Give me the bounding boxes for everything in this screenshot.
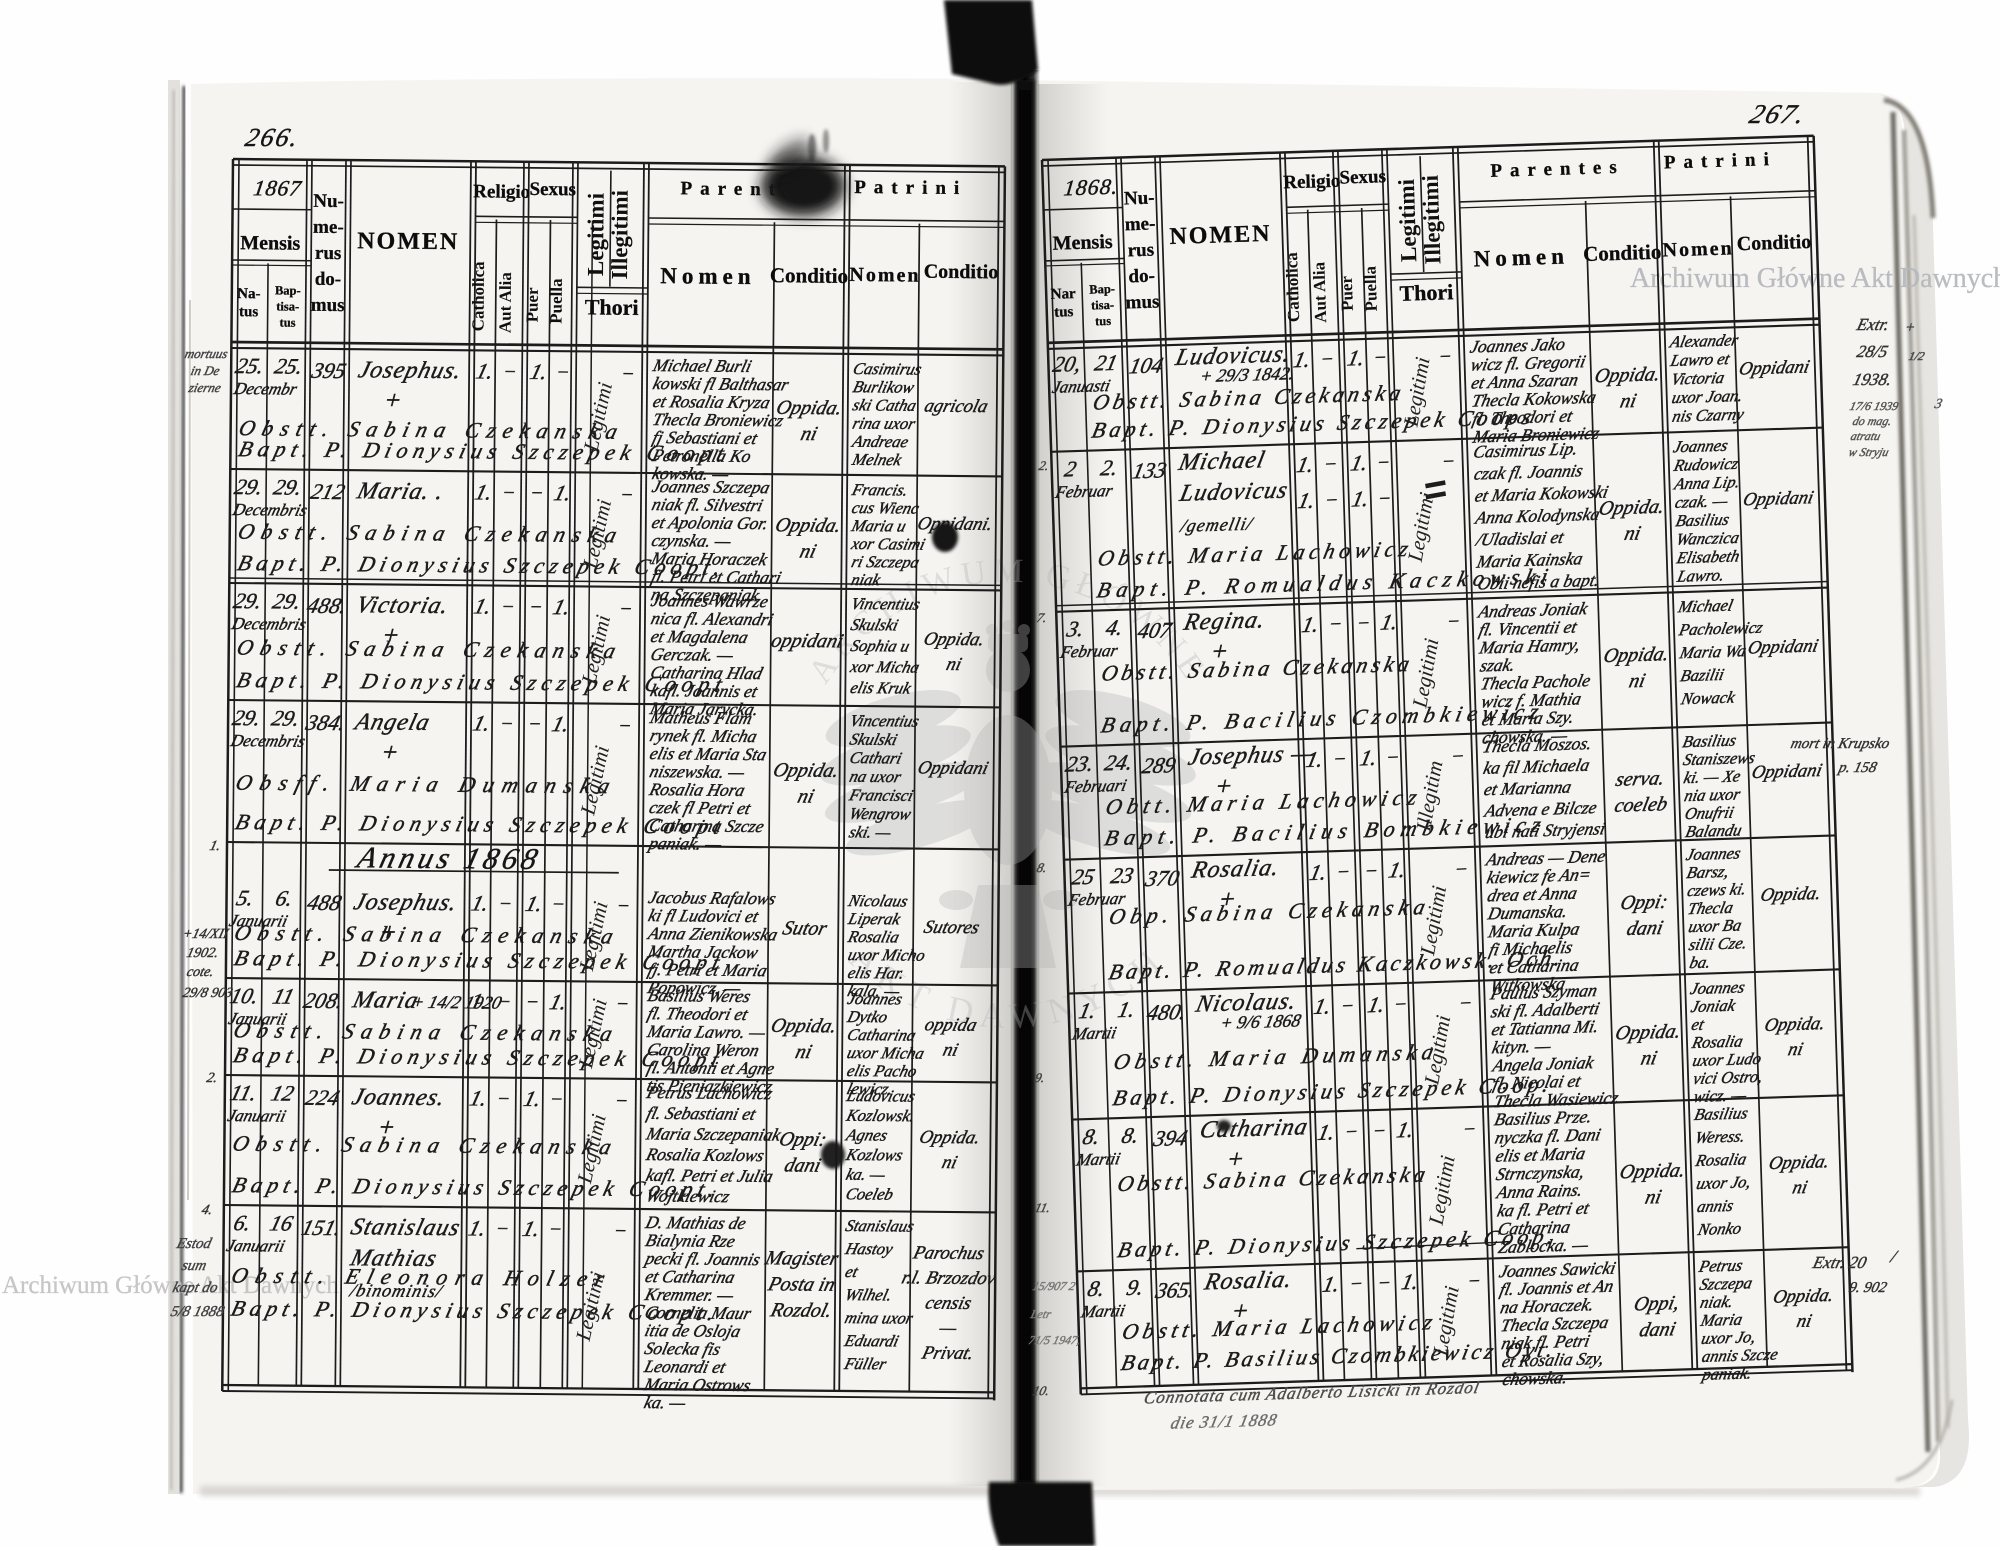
- svg-text:do-: do-: [1128, 266, 1155, 288]
- svg-text:elis Pacho: elis Pacho: [845, 1061, 919, 1080]
- svg-text:Oppi:: Oppi:: [1618, 891, 1669, 914]
- svg-text:Decembris: Decembris: [229, 614, 309, 633]
- svg-text:Andreae: Andreae: [849, 432, 911, 451]
- svg-text:cus Wienc: cus Wienc: [850, 498, 922, 517]
- svg-text:Februar: Februar: [1053, 481, 1115, 502]
- svg-text:Conditio: Conditio: [1736, 231, 1811, 255]
- svg-text:Maria u: Maria u: [849, 516, 908, 535]
- svg-text:dani: dani: [1625, 917, 1666, 940]
- svg-text:Barsz,: Barsz,: [1685, 862, 1731, 882]
- svg-text:Oppida.: Oppida.: [921, 629, 986, 650]
- svg-text:Conditio: Conditio: [1583, 240, 1662, 266]
- svg-text:Nicolaus: Nicolaus: [845, 891, 910, 910]
- svg-text:Regina.: Regina.: [1181, 606, 1269, 635]
- svg-text:15/907 2: 15/907 2: [1031, 1279, 1077, 1293]
- svg-text:ka. —: ka. —: [844, 1165, 887, 1184]
- svg-text:Februar: Februar: [1058, 641, 1120, 662]
- svg-text:384.: 384.: [303, 710, 349, 735]
- svg-text:Eduardi: Eduardi: [842, 1331, 902, 1350]
- svg-text:zierne: zierne: [186, 380, 223, 395]
- svg-text:Wilhel.: Wilhel.: [843, 1285, 894, 1304]
- svg-text:elis Kruk: elis Kruk: [848, 678, 913, 697]
- svg-text:rus: rus: [1127, 240, 1154, 262]
- svg-text:17/6 1939: 17/6 1939: [1848, 399, 1900, 413]
- svg-text:censis: censis: [923, 1293, 974, 1314]
- svg-text:Thecla: Thecla: [1686, 898, 1735, 918]
- svg-text:Parentes: Parentes: [1490, 157, 1625, 182]
- svg-text:Michael: Michael: [1176, 446, 1268, 476]
- svg-text:Cathari: Cathari: [848, 748, 905, 767]
- svg-text:Casimirus Lip.: Casimirus Lip.: [1472, 438, 1580, 461]
- svg-text:1938.: 1938.: [1851, 370, 1894, 389]
- svg-text:r.l. Brzozdov: r.l. Brzozdov: [899, 1268, 998, 1290]
- svg-text:Annus 1868: Annus 1868: [352, 841, 545, 876]
- svg-text:ka fil Michaela: ka fil Michaela: [1482, 755, 1592, 778]
- svg-text:Josephus —: Josephus —: [1186, 740, 1317, 771]
- svg-text:xor Micha: xor Micha: [848, 657, 922, 676]
- svg-text:Liperak: Liperak: [845, 909, 903, 928]
- svg-text:tus: tus: [239, 304, 258, 320]
- svg-text:Rosalia.: Rosalia.: [1188, 854, 1282, 884]
- svg-text:Nu-: Nu-: [313, 191, 344, 212]
- svg-text:Bap-: Bap-: [1089, 282, 1115, 297]
- svg-text:Oppida.: Oppida.: [1597, 496, 1667, 520]
- svg-text:Martii: Martii: [1074, 1149, 1123, 1169]
- svg-text:Stanislaus: Stanislaus: [348, 1214, 464, 1242]
- svg-text:Decembris: Decembris: [228, 731, 308, 750]
- svg-text:Catholica: Catholica: [468, 261, 488, 332]
- svg-text:Nomen: Nomen: [660, 263, 755, 289]
- svg-text:czews ki.: czews ki.: [1686, 879, 1749, 900]
- svg-text:20,: 20,: [1051, 351, 1084, 377]
- svg-text:Kozlowsk.: Kozlowsk.: [844, 1106, 917, 1125]
- svg-text:Thori: Thori: [1399, 279, 1454, 306]
- svg-text:151.: 151.: [299, 1215, 344, 1240]
- svg-text:Joannes: Joannes: [1684, 844, 1743, 865]
- svg-text:Obii nefis a bapt.: Obii nefis a bapt.: [1476, 570, 1602, 594]
- svg-text:ba.: ba.: [1688, 953, 1713, 972]
- svg-text:Obstt. Eleonora Holzer: Obstt. Eleonora Holzer: [229, 1263, 615, 1291]
- svg-text:mus: mus: [1125, 291, 1159, 313]
- svg-text:Sutores: Sutores: [922, 917, 982, 938]
- svg-text:1867: 1867: [252, 175, 304, 200]
- svg-text:Rosalia: Rosalia: [1693, 1150, 1748, 1170]
- svg-text:die 31/1 1888: die 31/1 1888: [1169, 1410, 1279, 1432]
- svg-text:Agnes: Agnes: [843, 1126, 890, 1145]
- svg-text:Rozdol.: Rozdol.: [767, 1300, 834, 1322]
- svg-text:Oppi:: Oppi:: [777, 1129, 829, 1151]
- svg-text:mus: mus: [311, 295, 345, 316]
- svg-text:Illegitimi: Illegitimi: [1418, 174, 1446, 265]
- svg-text:Coeleb: Coeleb: [844, 1185, 896, 1204]
- svg-text:Skulski: Skulski: [849, 615, 901, 634]
- svg-text:silii Cze.: silii Cze.: [1687, 933, 1749, 954]
- svg-text:Joannes: Joannes: [1689, 977, 1748, 998]
- svg-text:Oppida.: Oppida.: [773, 515, 844, 537]
- svg-text:dani: dani: [1637, 1318, 1678, 1341]
- svg-text:Maria. .: Maria. .: [354, 478, 448, 505]
- svg-text:Obstt. Sabina Czekanska: Obstt. Sabina Czekanska: [231, 1018, 622, 1046]
- svg-text:Parochus: Parochus: [910, 1243, 986, 1264]
- svg-text:Melnek: Melnek: [849, 450, 904, 469]
- svg-text:Nu-: Nu-: [1124, 187, 1155, 209]
- svg-text:Aut Alia: Aut Alia: [1309, 261, 1330, 323]
- svg-text:oppidani: oppidani: [769, 630, 846, 652]
- svg-text:Ludovicus: Ludovicus: [1177, 477, 1291, 507]
- svg-text:Religio: Religio: [473, 181, 530, 203]
- svg-text:/gemelli/: /gemelli/: [1178, 514, 1256, 536]
- svg-text:mina uxor: mina uxor: [843, 1308, 916, 1327]
- svg-text:Rosalia: Rosalia: [845, 927, 901, 946]
- svg-text:Advena e Bilcze: Advena e Bilcze: [1482, 797, 1599, 820]
- svg-text:Extr.: Extr.: [1854, 315, 1891, 334]
- svg-text:Obsff. Maria Dumanska: Obsff. Maria Dumanska: [233, 770, 621, 798]
- svg-text:Oppida.: Oppida.: [1601, 643, 1671, 667]
- svg-text:Oppida.: Oppida.: [1759, 883, 1824, 906]
- svg-text:Elisabeth: Elisabeth: [1674, 546, 1741, 567]
- svg-text:Oppida.: Oppida.: [1613, 1021, 1683, 1045]
- svg-text:niak: niak: [849, 570, 883, 589]
- svg-text:Letr: Letr: [1028, 1307, 1053, 1321]
- svg-text:Religio: Religio: [1283, 171, 1341, 194]
- svg-text:Füller: Füller: [841, 1354, 889, 1373]
- svg-text:czak fl. Joannis: czak fl. Joannis: [1472, 460, 1585, 483]
- svg-text:ka. —: ka. —: [642, 1392, 688, 1412]
- svg-text:Rudowicz: Rudowicz: [1671, 454, 1741, 475]
- svg-text:Wengrow: Wengrow: [847, 804, 914, 823]
- svg-text:Lawro et: Lawro et: [1668, 349, 1732, 370]
- svg-text:267.: 267.: [1746, 99, 1811, 129]
- svg-text:+ 29/3 1842.: + 29/3 1842.: [1198, 363, 1296, 386]
- svg-text:289: 289: [1140, 752, 1178, 778]
- svg-text:Zablocka. —: Zablocka. —: [1497, 1234, 1591, 1257]
- svg-text:Szczepa: Szczepa: [1698, 1273, 1754, 1293]
- svg-text:uxor Jo,: uxor Jo,: [1695, 1172, 1753, 1193]
- svg-text:488: 488: [305, 890, 344, 915]
- svg-text:Oppida.: Oppida.: [1763, 1013, 1828, 1036]
- svg-text:Illegitimi: Illegitimi: [607, 189, 633, 279]
- svg-text:et Marianna: et Marianna: [1482, 777, 1573, 800]
- svg-text:mortuus: mortuus: [183, 346, 229, 361]
- svg-text:vici Ostro,: vici Ostro,: [1691, 1067, 1764, 1088]
- svg-text:Casimirus: Casimirus: [851, 359, 924, 378]
- svg-text:do mag.: do mag.: [1851, 414, 1893, 428]
- svg-text:Puella: Puella: [547, 278, 566, 324]
- svg-text:Decembr: Decembr: [231, 379, 299, 398]
- svg-text:Puer: Puer: [1337, 275, 1357, 311]
- svg-text:mort in Krupsko: mort in Krupsko: [1789, 735, 1892, 752]
- svg-text:24.: 24.: [1102, 750, 1135, 776]
- svg-text:w Stryju: w Stryju: [1847, 445, 1890, 459]
- svg-text:Basilius: Basilius: [1674, 510, 1732, 531]
- svg-text:Pacholewicz: Pacholewicz: [1676, 618, 1765, 640]
- svg-text:+ 14/2 1920: + 14/2 1920: [410, 992, 504, 1013]
- svg-text:me-: me-: [313, 217, 344, 238]
- svg-text:Maria Wa: Maria Wa: [1677, 641, 1748, 662]
- svg-text:paniak. —: paniak. —: [645, 833, 724, 853]
- svg-text:Oppi,: Oppi,: [1632, 1292, 1682, 1315]
- svg-text:na uxor: na uxor: [848, 767, 904, 786]
- svg-text:Basilius: Basilius: [1693, 1103, 1751, 1124]
- svg-text:oppida: oppida: [922, 1015, 979, 1036]
- svg-text:rina uxor: rina uxor: [851, 414, 918, 433]
- svg-text:rus: rus: [315, 243, 342, 264]
- svg-text:fl. Sebastiani et: fl. Sebastiani et: [645, 1103, 759, 1124]
- svg-text:Ludovicus: Ludovicus: [844, 1086, 918, 1105]
- svg-text:Stanislaus: Stanislaus: [844, 1216, 917, 1235]
- svg-text:1902.: 1902.: [185, 945, 220, 961]
- svg-text:Nonko: Nonko: [1695, 1219, 1743, 1239]
- svg-text:Oppidani: Oppidani: [915, 758, 990, 779]
- svg-text:Oppidani: Oppidani: [1741, 487, 1815, 510]
- svg-text:Dytko: Dytko: [844, 1007, 889, 1026]
- svg-text:Joannes.: Joannes.: [349, 1084, 448, 1111]
- svg-text:395: 395: [308, 358, 348, 383]
- svg-text:104: 104: [1127, 353, 1165, 379]
- svg-text:Oppida.: Oppida.: [917, 1127, 982, 1148]
- svg-text:Skulski: Skulski: [848, 730, 900, 749]
- svg-text:Martii: Martii: [1079, 1301, 1128, 1321]
- svg-text:Extr. 20: Extr. 20: [1810, 1253, 1869, 1272]
- svg-text:coeleb: coeleb: [1613, 793, 1670, 816]
- svg-text:kapt do: kapt do: [171, 1279, 220, 1296]
- svg-text:Alexander: Alexander: [1667, 330, 1740, 351]
- svg-text:Januarii: Januarii: [226, 1106, 289, 1125]
- svg-text:Catholica: Catholica: [1282, 251, 1303, 322]
- svg-text:Nomen: Nomen: [1473, 244, 1569, 272]
- svg-text:Oppida.: Oppida.: [1593, 363, 1663, 387]
- svg-text:NOMEN: NOMEN: [357, 228, 459, 255]
- svg-text:Maria: Maria: [1698, 1310, 1744, 1330]
- svg-text:+14/XII: +14/XII: [181, 926, 231, 942]
- svg-text:Wanczica: Wanczica: [1675, 528, 1742, 549]
- svg-text:Estod: Estod: [174, 1235, 214, 1252]
- svg-text:dani: dani: [782, 1155, 823, 1177]
- svg-text:Oppidani: Oppidani: [1746, 636, 1820, 659]
- svg-text:xor Casimi: xor Casimi: [849, 534, 928, 553]
- svg-text:Rosalia Kozlows: Rosalia Kozlows: [643, 1144, 766, 1165]
- svg-text:Josephus.: Josephus.: [351, 889, 461, 917]
- svg-text:Burlikow: Burlikow: [851, 377, 917, 396]
- svg-text:1868.: 1868.: [1063, 174, 1120, 201]
- svg-text:Conditio: Conditio: [770, 263, 848, 288]
- svg-text:czak. —: czak. —: [1673, 491, 1729, 511]
- svg-text:28/5: 28/5: [1855, 342, 1890, 361]
- svg-text:480.: 480.: [1145, 999, 1189, 1025]
- svg-text:ski. —: ski. —: [847, 823, 893, 842]
- svg-text:Joannes: Joannes: [846, 989, 905, 1008]
- svg-text:agricola: agricola: [922, 396, 990, 417]
- svg-text:Wojtkiewicz: Wojtkiewicz: [644, 1186, 732, 1206]
- svg-text:Catharina: Catharina: [1197, 1113, 1310, 1143]
- svg-text:ubi nati Stryjensi: ubi nati Stryjensi: [1484, 818, 1608, 842]
- svg-text:me-: me-: [1124, 213, 1155, 235]
- svg-text:Nomen: Nomen: [1662, 237, 1734, 261]
- svg-text:Bazilii: Bazilii: [1679, 665, 1726, 685]
- svg-text:Vincentius: Vincentius: [849, 594, 923, 613]
- svg-text:ri Szczepa: ri Szczepa: [849, 552, 921, 571]
- svg-text:annis: annis: [1696, 1196, 1736, 1216]
- svg-text:Balandu: Balandu: [1684, 821, 1744, 842]
- svg-text:133: 133: [1130, 457, 1168, 483]
- svg-text:Petrus Lachowicz: Petrus Lachowicz: [644, 1082, 775, 1103]
- svg-text:Aut Alia: Aut Alia: [495, 272, 515, 334]
- svg-text:Victoria.: Victoria.: [354, 592, 453, 619]
- svg-text:Oppida.: Oppida.: [1767, 1151, 1832, 1174]
- svg-text:sum: sum: [180, 1257, 208, 1274]
- svg-text:Petrus: Petrus: [1696, 1256, 1745, 1276]
- svg-text:Kozlows: Kozlows: [843, 1145, 905, 1164]
- svg-text:tus: tus: [1095, 314, 1112, 328]
- svg-text:Puella: Puella: [1360, 265, 1380, 311]
- svg-text:Anna Lip.: Anna Lip.: [1672, 472, 1742, 493]
- svg-text:Bap-: Bap-: [275, 283, 301, 297]
- svg-text:Na-: Na-: [237, 286, 260, 302]
- svg-text:nis Czarny: nis Czarny: [1671, 405, 1747, 426]
- svg-text:annis Szcze: annis Szcze: [1700, 1345, 1780, 1366]
- svg-text:Legitimi: Legitimi: [583, 192, 609, 276]
- svg-text:Conditio: Conditio: [924, 261, 999, 284]
- svg-text:407: 407: [1136, 617, 1175, 643]
- svg-text:224: 224: [303, 1085, 342, 1110]
- svg-text:tus: tus: [1054, 304, 1074, 321]
- svg-text:Lawro.: Lawro.: [1675, 565, 1727, 585]
- svg-text:NOMEN: NOMEN: [1169, 221, 1272, 250]
- svg-text:Mensis: Mensis: [240, 232, 300, 255]
- svg-text:niak.: niak.: [1699, 1292, 1736, 1312]
- svg-text:Francisci: Francisci: [846, 786, 915, 805]
- svg-text:208.: 208.: [301, 988, 346, 1013]
- svg-text:Michael: Michael: [1676, 596, 1735, 617]
- svg-text:Sexus: Sexus: [1339, 166, 1386, 188]
- svg-text:in De: in De: [189, 363, 221, 378]
- svg-text:kafl. Petri et Julia: kafl. Petri et Julia: [644, 1165, 775, 1186]
- svg-text:Josephus.: Josephus.: [356, 357, 466, 385]
- svg-text:ski Catha: ski Catha: [851, 396, 919, 415]
- svg-text:Maria Szczepaniak: Maria Szczepaniak: [643, 1124, 784, 1145]
- svg-text:uxor Micho: uxor Micho: [846, 945, 927, 964]
- svg-text:Francis.: Francis.: [849, 480, 910, 499]
- svg-text:uxor Micha: uxor Micha: [845, 1043, 926, 1062]
- svg-text:Joniak: Joniak: [1689, 996, 1738, 1016]
- svg-text:elis Har.: elis Har.: [846, 963, 907, 982]
- svg-text:Januarii: Januarii: [224, 1236, 287, 1255]
- svg-text:71/5 1947,: 71/5 1947,: [1027, 1333, 1082, 1347]
- svg-text:Joannes: Joannes: [1672, 436, 1731, 457]
- svg-text:p. 158: p. 158: [1836, 759, 1879, 776]
- svg-text:Decembris: Decembris: [230, 500, 310, 519]
- svg-text:Catharina: Catharina: [845, 1025, 918, 1044]
- svg-text:Hastoy: Hastoy: [842, 1239, 895, 1258]
- svg-text:Nomen: Nomen: [849, 264, 920, 287]
- svg-text:Sutor: Sutor: [780, 918, 829, 940]
- svg-text:+ 9/6 1868: + 9/6 1868: [1219, 1010, 1303, 1032]
- svg-text:5/8 1888: 5/8 1888: [169, 1303, 226, 1320]
- svg-text:Patrini: Patrini: [1664, 149, 1778, 174]
- svg-text:Anna Kolodynska: Anna Kolodynska: [1473, 504, 1602, 528]
- svg-text:Archiwum Główne Akt Dawnych: Archiwum Główne Akt Dawnych: [1630, 263, 2000, 294]
- svg-text:serva.: serva.: [1614, 767, 1667, 790]
- svg-text:266.: 266.: [243, 122, 304, 152]
- svg-text:Mensis: Mensis: [1052, 231, 1113, 255]
- svg-text:paniak.: paniak.: [1700, 1363, 1754, 1383]
- svg-text:Oppida.: Oppida.: [1771, 1285, 1836, 1308]
- svg-text:/Uladislai et: /Uladislai et: [1473, 527, 1566, 550]
- svg-text:uxor Joan.: uxor Joan.: [1670, 386, 1745, 407]
- svg-text:Oppida.: Oppida.: [774, 397, 845, 419]
- svg-text:Sophia u: Sophia u: [849, 636, 912, 655]
- svg-text:Obstt. Sabina Czekanska: Obstt. Sabina Czekanska: [235, 519, 626, 547]
- svg-text:Puer: Puer: [523, 287, 542, 323]
- svg-text:Victoria: Victoria: [1670, 368, 1727, 389]
- svg-text:Obstt. Sabina Czekanska: Obstt. Sabina Czekanska: [230, 1131, 621, 1159]
- svg-text:Oppidani: Oppidani: [1737, 357, 1811, 380]
- svg-text:Obstt. Sabina Czekanska: Obstt. Sabina Czekanska: [234, 635, 625, 663]
- svg-text:Posta in: Posta in: [765, 1274, 838, 1296]
- svg-text:Oppidani: Oppidani: [1750, 760, 1824, 783]
- svg-text:chowska. —: chowska. —: [1501, 1367, 1590, 1390]
- svg-text:cote.: cote.: [185, 964, 216, 980]
- svg-text:365.: 365.: [1153, 1277, 1198, 1303]
- svg-text:Obstt. Sabina Czekanska: Obstt. Sabina Czekanska: [232, 920, 623, 948]
- svg-text:Nowack: Nowack: [1679, 688, 1738, 709]
- svg-text:tisa-: tisa-: [1091, 298, 1114, 313]
- svg-text:Vincentius: Vincentius: [848, 711, 922, 730]
- svg-text:29/8 903: 29/8 903: [181, 985, 234, 1001]
- svg-text:Magister: Magister: [762, 1247, 841, 1269]
- svg-text:tisa-: tisa-: [276, 299, 299, 313]
- svg-text:Weress.: Weress.: [1693, 1127, 1747, 1147]
- svg-text:9. 902: 9. 902: [1847, 1279, 1889, 1296]
- svg-text:Privat.: Privat.: [919, 1343, 976, 1364]
- svg-text:tus: tus: [280, 315, 296, 329]
- svg-text:Martii: Martii: [1070, 1023, 1119, 1043]
- svg-text:Nar: Nar: [1050, 286, 1076, 303]
- svg-text:Angela: Angela: [351, 709, 434, 736]
- svg-text:23.: 23.: [1063, 751, 1096, 777]
- svg-text:Maria Hamry,: Maria Hamry,: [1477, 635, 1582, 658]
- svg-text:Thecla Moszos.: Thecla Moszos.: [1481, 733, 1594, 756]
- svg-text:212: 212: [308, 479, 347, 504]
- svg-text:Thori: Thori: [585, 294, 639, 320]
- svg-text:Oppida.: Oppida.: [769, 1015, 840, 1037]
- svg-text:Staniszews: Staniszews: [1681, 748, 1757, 769]
- svg-text:do-: do-: [315, 269, 342, 290]
- svg-text:394: 394: [1150, 1125, 1189, 1151]
- svg-text:Oppida.: Oppida.: [771, 760, 842, 782]
- svg-text:488.: 488.: [305, 593, 350, 618]
- svg-text:370: 370: [1142, 865, 1181, 891]
- svg-text:Oppida.: Oppida.: [1618, 1159, 1688, 1183]
- svg-text:Patrini: Patrini: [854, 177, 967, 199]
- svg-text:Sexus: Sexus: [529, 179, 576, 200]
- svg-text:atratu: atratu: [1849, 429, 1882, 443]
- svg-text:Rosalia.: Rosalia.: [1201, 1266, 1295, 1296]
- svg-text:Maria Kainska: Maria Kainska: [1474, 548, 1585, 571]
